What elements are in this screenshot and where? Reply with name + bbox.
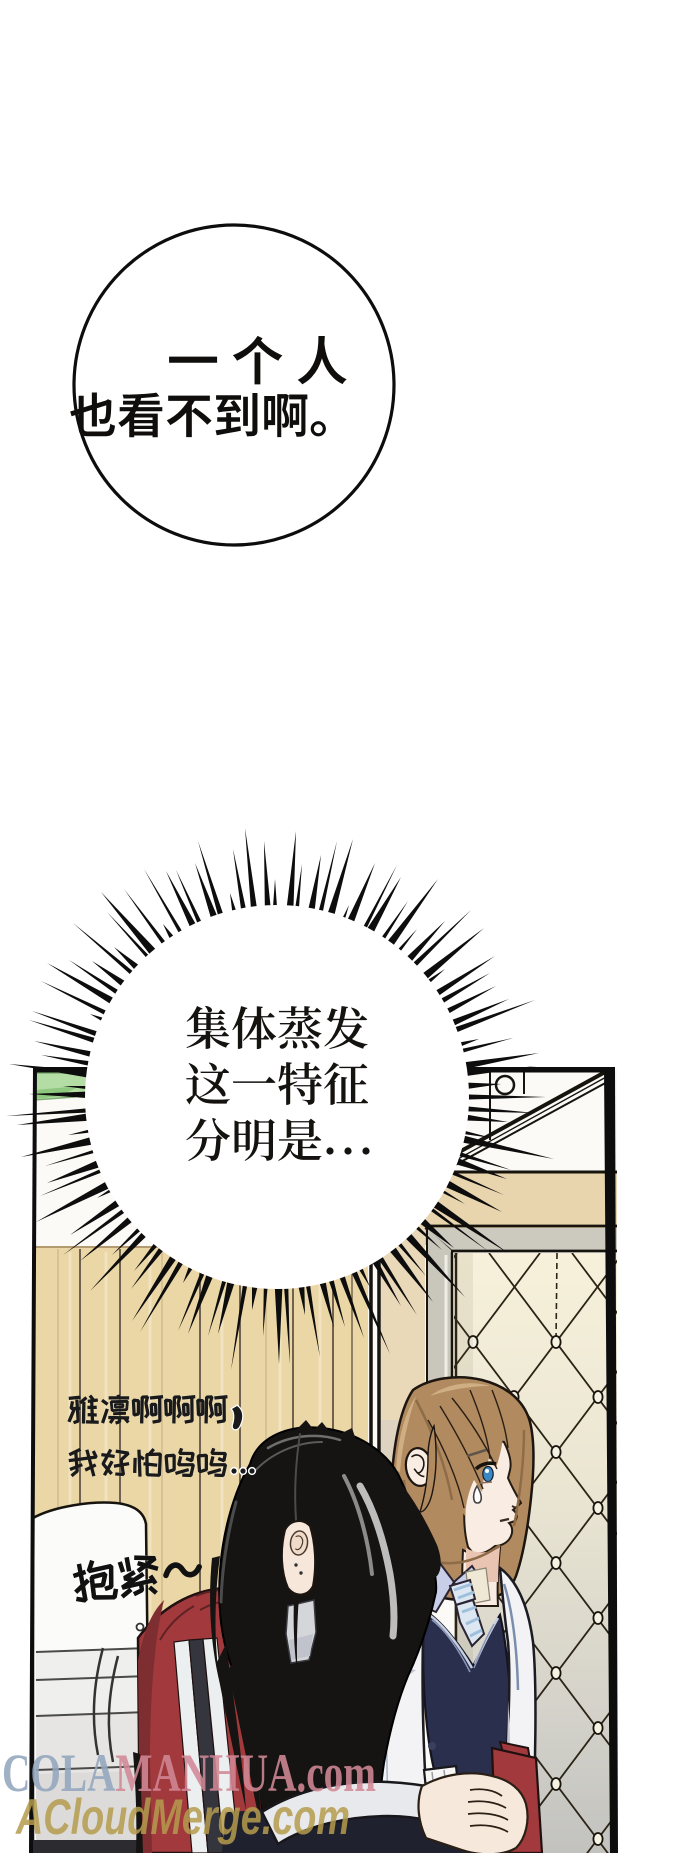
svg-text:ACloudMerge.com: ACloudMerge.com xyxy=(14,1789,350,1845)
